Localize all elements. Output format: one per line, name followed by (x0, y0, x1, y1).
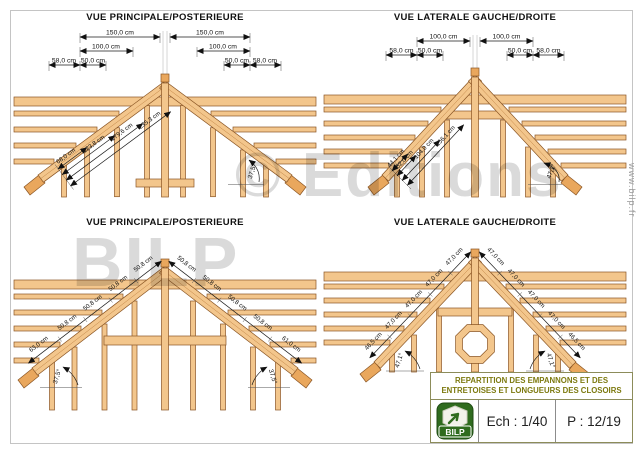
plan-sheet: VUE PRINCIPALE/POSTERIEURE 150,0 cm 150,… (0, 0, 640, 452)
angle-annotation: 37,5° (228, 160, 264, 185)
title-block-header: REPARTITION DES EMPANNONS ET DES ENTRETO… (431, 373, 632, 400)
truss-drawing-principal-bottom: 63,0 cm 50,8 cm 50,8 cm 50,8 cm 50,8 cm … (12, 230, 318, 420)
dim-label: 58,0 cm (253, 58, 278, 65)
dim-label: 58,0 cm (536, 48, 561, 55)
timber-frame (324, 68, 626, 197)
king-post (162, 83, 169, 197)
panel-top-right: VUE LATERALE GAUCHE/DROITE 100,0 cm 100,… (322, 11, 628, 205)
dim-label: 100,0 cm (430, 34, 458, 41)
title-block-line2: ENTRETOISES ET LONGUEURS DES CLOSOIRS (432, 386, 631, 396)
title-block-line1: REPARTITION DES EMPANNONS ET DES (432, 376, 631, 386)
segment-label: 50,8 cm (133, 255, 155, 274)
dimension-rows: 100,0 cm 100,0 cm 58,0 cm 50,0 cm 50,0 c… (386, 34, 564, 74)
panel-title: VUE PRINCIPALE/POSTERIEURE (12, 11, 318, 25)
ridge-purlin (161, 259, 169, 267)
king-post (162, 268, 169, 410)
segment-label: 47,0 cm (444, 246, 464, 267)
title-block-body: BILP Ech : 1/40 P : 12/19 (431, 400, 632, 442)
truss-drawing-lateral-bottom: 46,5 cm 47,0 cm 47,0 cm 47,0 cm 47,0 cm … (322, 230, 628, 390)
bilp-logo-icon: BILP (436, 402, 474, 440)
ridge-purlin (471, 249, 479, 257)
dim-label: 150,0 cm (106, 30, 134, 37)
truss-drawing-lateral-top: 100,0 cm 100,0 cm 58,0 cm 50,0 cm 50,0 c… (322, 25, 628, 205)
dim-label: 50,0 cm (508, 48, 533, 55)
dimension-rows: 150,0 cm 150,0 cm 100,0 cm 100,0 cm 58,0… (49, 30, 281, 78)
timber-frame (324, 249, 626, 382)
dim-label: 58,0 cm (389, 48, 414, 55)
segment-label: 47,0 cm (485, 246, 505, 267)
panel-title: VUE PRINCIPALE/POSTERIEURE (12, 216, 318, 230)
segment-label: 50,8 cm (176, 255, 198, 274)
scale-value: Ech : 1/40 (479, 400, 556, 442)
title-block: REPARTITION DES EMPANNONS ET DES ENTRETO… (430, 372, 633, 443)
ridge-purlin (161, 74, 169, 82)
dim-label: 50,0 cm (225, 58, 250, 65)
watermark-side-url: www.bilp.fr (627, 163, 637, 218)
angle-label: 37,5° (246, 163, 258, 180)
dim-label: 50,0 cm (418, 48, 443, 55)
dim-label: 100,0 cm (92, 44, 120, 51)
truss-drawing-principal-top: 150,0 cm 150,0 cm 100,0 cm 100,0 cm 58,0… (12, 25, 318, 205)
dim-label: 100,0 cm (493, 34, 521, 41)
logo-text: BILP (445, 427, 465, 437)
panel-top-left: VUE PRINCIPALE/POSTERIEURE 150,0 cm 150,… (12, 11, 318, 205)
panel-bottom-right: VUE LATERALE GAUCHE/DROITE (322, 216, 628, 390)
king-post (472, 77, 479, 197)
panel-title: VUE LATERALE GAUCHE/DROITE (322, 11, 628, 25)
octagon-window-opening (463, 332, 488, 357)
panel-bottom-left: VUE PRINCIPALE/POSTERIEURE (12, 216, 318, 420)
timber-frame (14, 74, 316, 197)
logo-cell: BILP (431, 400, 479, 442)
panel-title: VUE LATERALE GAUCHE/DROITE (322, 216, 628, 230)
dim-label: 100,0 cm (209, 44, 237, 51)
dim-label: 150,0 cm (196, 30, 224, 37)
dim-label: 50,0 cm (81, 58, 106, 65)
ridge-purlin (471, 68, 479, 76)
dim-label: 58,0 cm (52, 58, 77, 65)
page-number: P : 12/19 (556, 400, 632, 442)
